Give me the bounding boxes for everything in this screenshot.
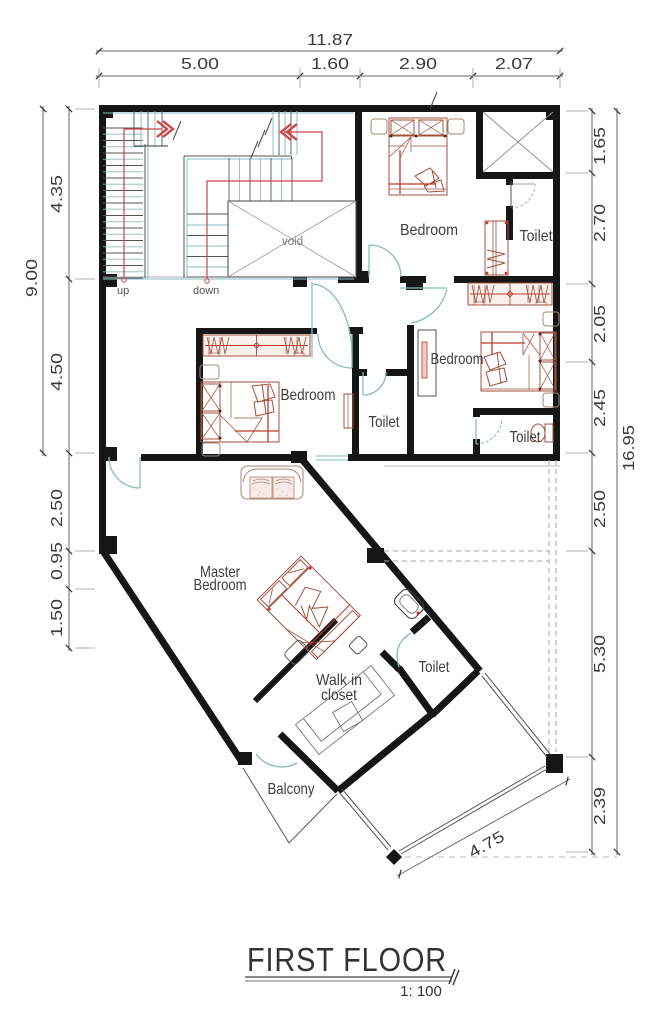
svg-text:0.95: 0.95 [49, 542, 66, 580]
svg-text:Bedroom: Bedroom [431, 351, 484, 368]
svg-text:9.00: 9.00 [24, 259, 41, 297]
svg-text:Balcony: Balcony [268, 781, 315, 798]
svg-text:2.90: 2.90 [399, 56, 437, 73]
svg-text:5.00: 5.00 [181, 56, 219, 73]
svg-text:2.07: 2.07 [495, 56, 533, 73]
svg-text:2.50: 2.50 [49, 489, 66, 527]
svg-text:Toilet: Toilet [419, 659, 450, 676]
svg-text:Toilet: Toilet [520, 228, 553, 245]
svg-text:1: 100: 1: 100 [400, 983, 442, 1000]
svg-text:4.35: 4.35 [49, 175, 66, 213]
svg-text:1.65: 1.65 [592, 127, 609, 165]
svg-text:Toilet: Toilet [510, 429, 541, 446]
svg-text:11.87: 11.87 [307, 32, 353, 49]
svg-text:2.39: 2.39 [592, 787, 609, 825]
svg-text:2.50: 2.50 [592, 490, 609, 528]
svg-text:Toilet: Toilet [369, 414, 400, 431]
svg-text:closet: closet [321, 687, 357, 704]
svg-text:down: down [193, 285, 219, 297]
svg-text:FIRST FLOOR: FIRST FLOOR [247, 941, 447, 978]
svg-text:void: void [282, 236, 303, 248]
svg-text:Bedroom: Bedroom [194, 577, 247, 594]
svg-text:up: up [117, 285, 129, 297]
svg-text:16.95: 16.95 [621, 425, 638, 471]
svg-text:5.30: 5.30 [592, 635, 609, 673]
svg-text:1.50: 1.50 [49, 599, 66, 637]
svg-text:1.60: 1.60 [311, 56, 349, 73]
svg-text:Bedroom: Bedroom [400, 222, 458, 239]
svg-text:Bedroom: Bedroom [281, 387, 336, 404]
svg-text:2.70: 2.70 [592, 204, 609, 242]
svg-text:2.45: 2.45 [592, 389, 609, 427]
svg-text:2.05: 2.05 [592, 305, 609, 343]
svg-text:4.50: 4.50 [49, 353, 66, 391]
